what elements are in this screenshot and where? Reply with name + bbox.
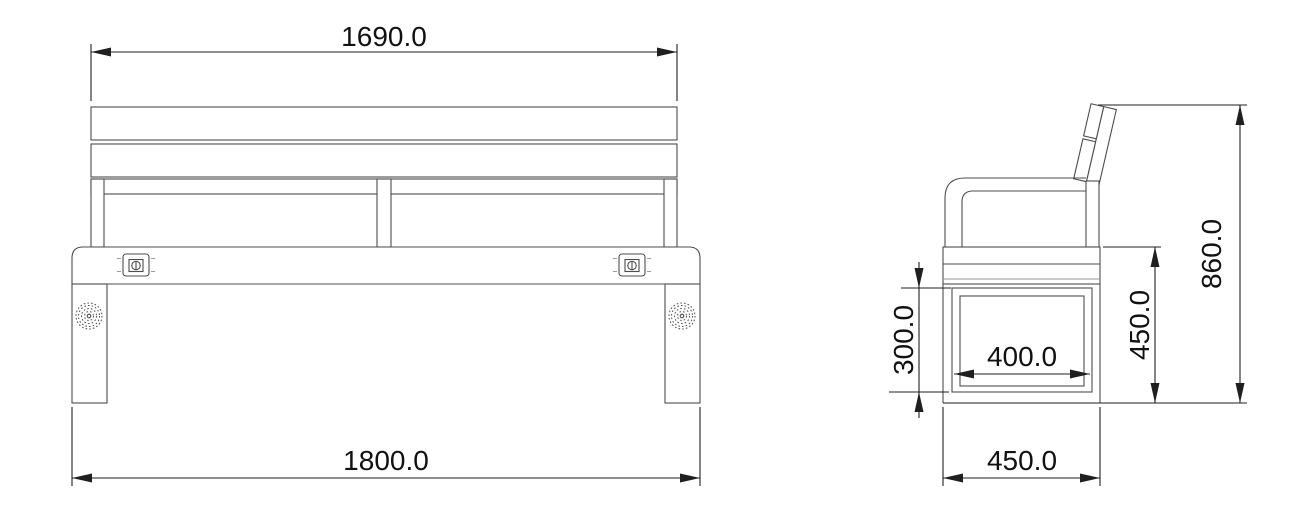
dim-front-bottom-width: 1800.0 xyxy=(72,407,700,486)
dim-label-450-height: 450.0 xyxy=(1124,290,1155,360)
backrest-post-left xyxy=(91,179,104,247)
dim-label-300: 300.0 xyxy=(888,305,919,375)
armrest-inner xyxy=(962,191,1086,247)
front-view xyxy=(72,107,700,403)
seat-board xyxy=(72,247,700,284)
backrest-board-bottom xyxy=(91,144,677,177)
dim-panel-width: 400.0 xyxy=(954,341,1090,379)
side-seat xyxy=(943,247,1100,284)
bench-leg-right xyxy=(665,284,700,403)
side-backrest-slant xyxy=(1073,104,1116,186)
dim-base-depth: 450.0 xyxy=(943,407,1100,486)
dim-seat-height: 450.0 xyxy=(1103,247,1161,403)
dim-front-top-width: 1690.0 xyxy=(91,21,677,101)
technical-drawing: 1690.0 1800.0 860.0 450.0 300.0 xyxy=(0,0,1300,524)
backrest-post-right xyxy=(664,179,677,247)
dim-panel-height: 300.0 xyxy=(888,262,951,418)
backrest-post-middle xyxy=(377,179,391,247)
dim-label-1690: 1690.0 xyxy=(341,21,427,52)
dim-label-450-depth: 450.0 xyxy=(987,445,1057,476)
dim-label-400: 400.0 xyxy=(987,341,1057,372)
dim-overall-height: 860.0 xyxy=(1098,105,1247,403)
backrest-board-top xyxy=(91,107,677,140)
armrest-outer xyxy=(945,178,1086,247)
drawing-canvas: 1690.0 1800.0 860.0 450.0 300.0 xyxy=(0,0,1300,524)
dim-label-860: 860.0 xyxy=(1196,219,1227,289)
side-backrest-post-lower xyxy=(1086,181,1099,247)
bench-leg-left xyxy=(72,284,107,403)
dim-label-1800: 1800.0 xyxy=(343,445,429,476)
